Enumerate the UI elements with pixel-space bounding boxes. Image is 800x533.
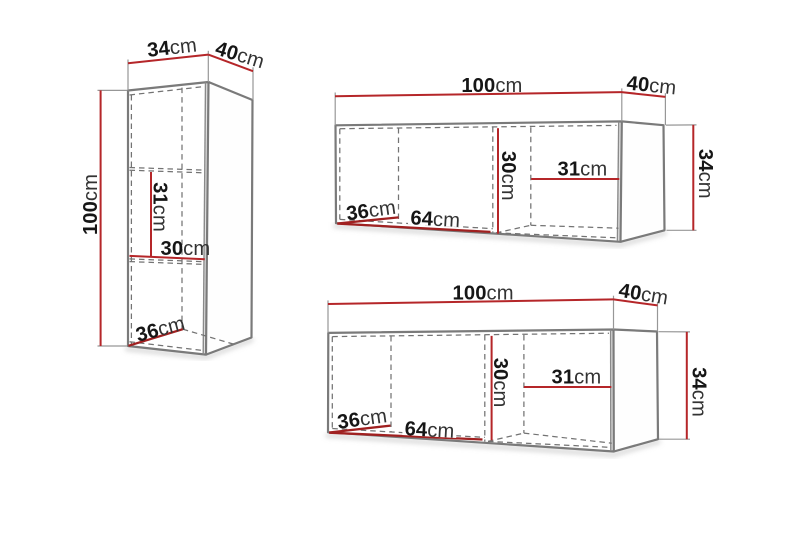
svg-text:100cm: 100cm [80,174,102,235]
svg-text:64cm: 64cm [404,418,455,443]
svg-text:30cm: 30cm [161,238,211,260]
svg-text:30cm: 30cm [489,358,511,408]
svg-text:31cm: 31cm [552,367,602,389]
svg-text:31cm: 31cm [149,182,171,232]
svg-text:64cm: 64cm [410,207,461,232]
svg-text:34cm: 34cm [694,149,716,199]
svg-text:100cm: 100cm [453,283,514,305]
svg-text:100cm: 100cm [461,75,522,97]
svg-text:30cm: 30cm [497,151,519,201]
svg-text:31cm: 31cm [558,158,608,180]
svg-text:34cm: 34cm [687,367,709,417]
